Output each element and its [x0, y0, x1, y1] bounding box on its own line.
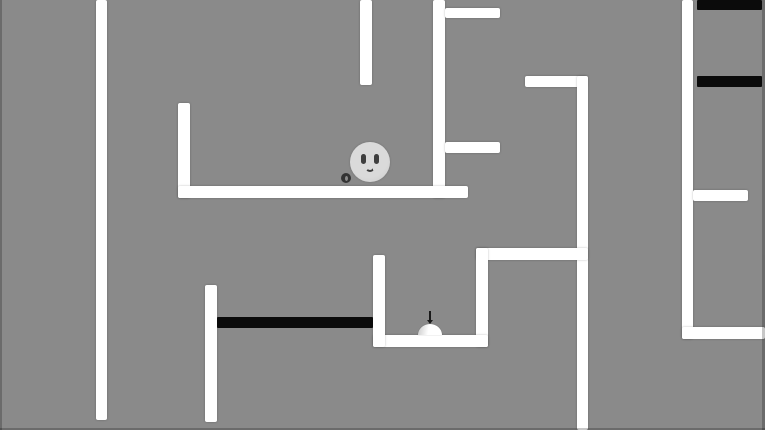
player-character[interactable]: [350, 142, 390, 182]
game-stage[interactable]: [0, 0, 765, 430]
screen-edge-left: [0, 0, 2, 430]
player-mouth: [365, 166, 375, 172]
player-eye-right: [374, 154, 379, 164]
pellet-hole: [345, 176, 348, 181]
dome-shell: [418, 324, 442, 335]
wall: [445, 8, 500, 18]
player-eye-left: [361, 154, 366, 164]
wall: [178, 186, 468, 198]
wall: [373, 335, 488, 347]
wall: [205, 285, 217, 422]
hazard-bar: [697, 76, 762, 87]
wall: [476, 248, 488, 347]
wall: [373, 255, 385, 347]
wall: [96, 0, 107, 420]
wall: [693, 190, 748, 201]
wall: [360, 0, 372, 85]
hazard-bar: [217, 317, 373, 328]
wall: [476, 248, 588, 260]
wall: [445, 142, 500, 153]
wall: [682, 0, 693, 339]
pellet-item: [341, 173, 351, 183]
dome-item: [418, 311, 442, 335]
wall: [178, 103, 190, 198]
wall: [433, 0, 445, 198]
wall: [682, 327, 765, 339]
hazard-bar: [697, 0, 762, 10]
